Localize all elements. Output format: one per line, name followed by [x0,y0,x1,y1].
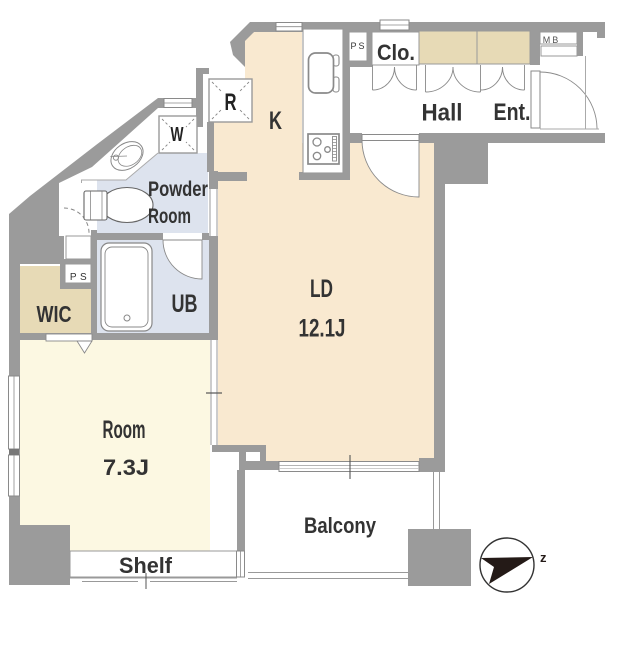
svg-text:Room: Room [103,416,146,444]
svg-text:7.3J: 7.3J [103,455,149,480]
svg-text:LD: LD [310,275,333,303]
svg-text:Room: Room [148,205,191,228]
svg-text:W: W [171,124,184,146]
svg-text:Clo.: Clo. [377,40,415,65]
svg-text:Hall: Hall [422,100,463,127]
svg-text:Ent.: Ent. [494,99,531,126]
svg-text:PS: PS [70,272,90,283]
svg-text:12.1J: 12.1J [299,315,346,343]
svg-text:PS: PS [350,41,366,51]
svg-text:MB: MB [543,35,561,45]
svg-text:z: z [540,550,547,565]
svg-text:WIC: WIC [37,301,72,327]
svg-text:Balcony: Balcony [304,513,377,538]
svg-text:K: K [269,107,282,135]
svg-text:Powder: Powder [148,178,208,201]
svg-text:R: R [225,89,237,116]
svg-text:UB: UB [172,290,198,318]
